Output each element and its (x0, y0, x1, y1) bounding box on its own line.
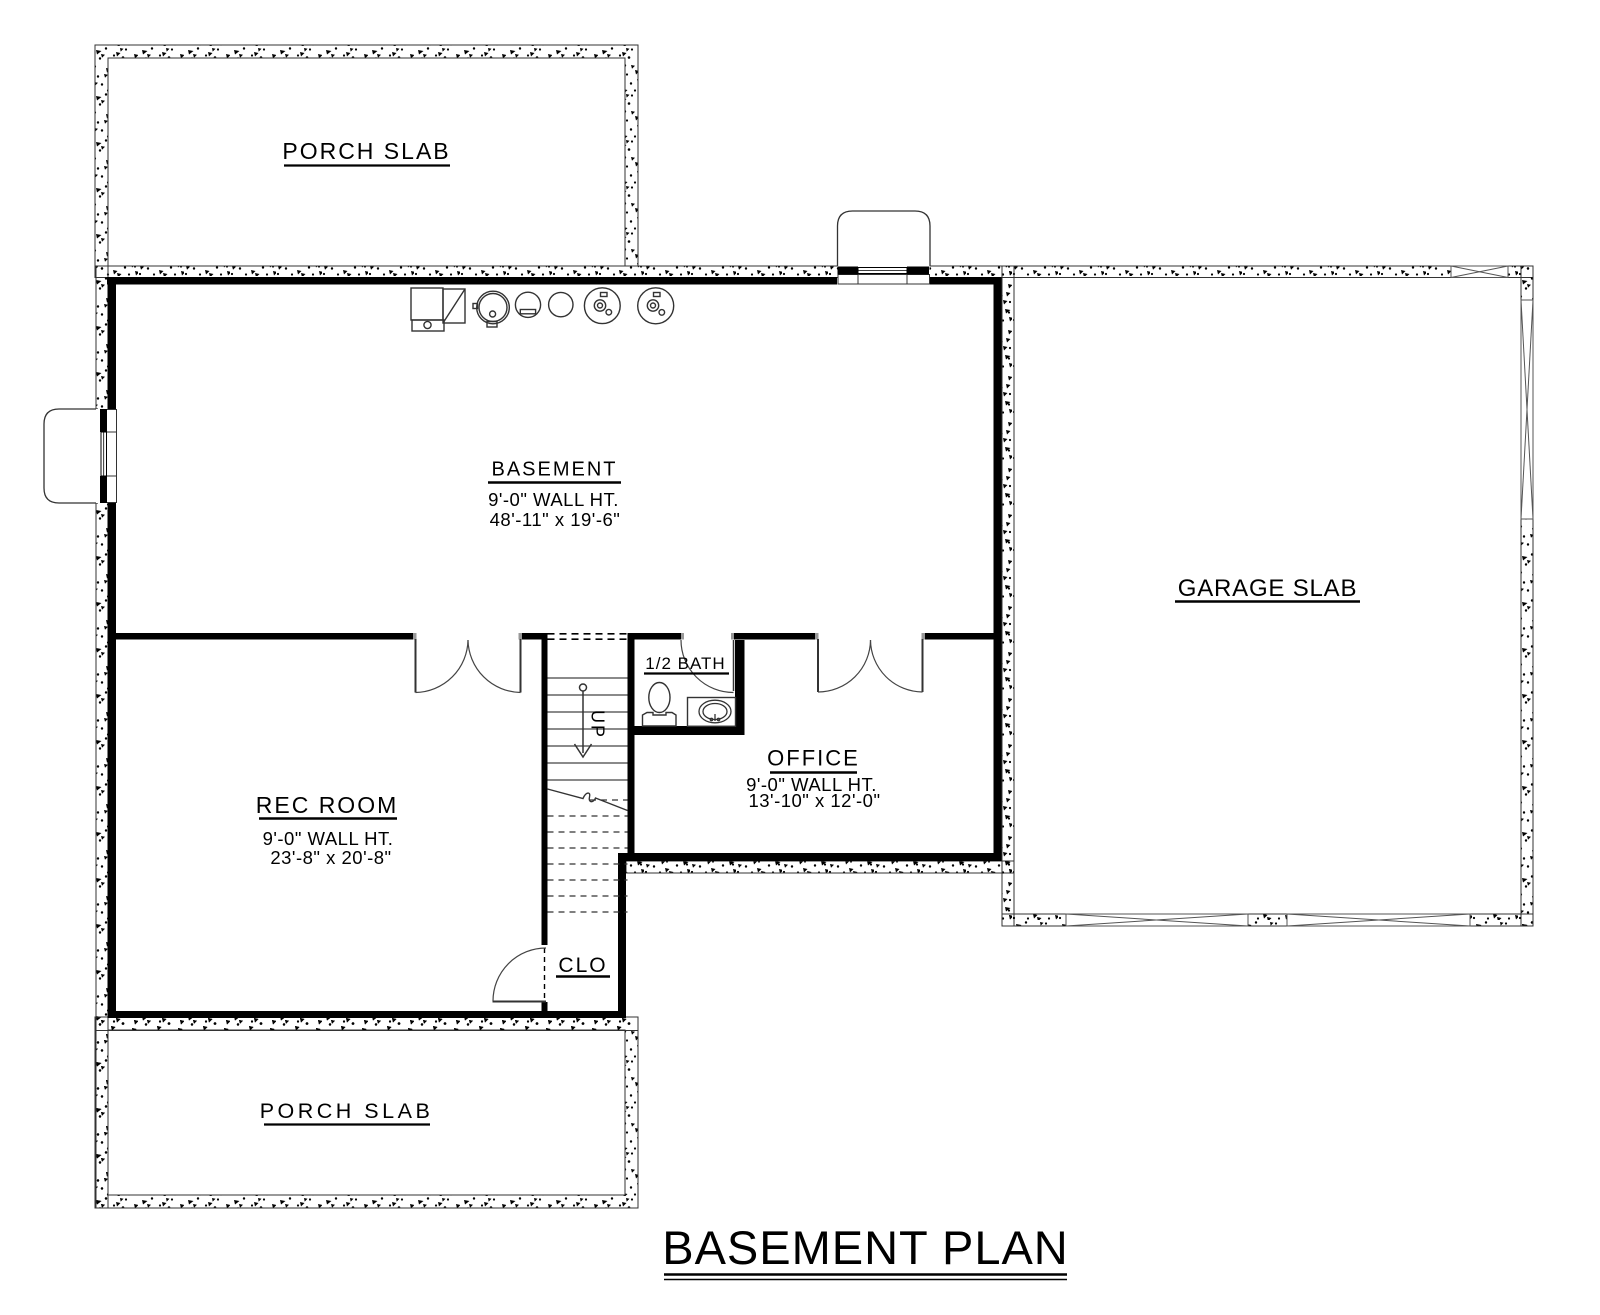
svg-text:13'-10" x 12'-0": 13'-10" x 12'-0" (748, 790, 880, 811)
svg-text:1/2 BATH: 1/2 BATH (645, 654, 725, 673)
svg-text:9'-0" WALL HT.: 9'-0" WALL HT. (488, 489, 619, 510)
svg-text:GARAGE SLAB: GARAGE SLAB (1178, 575, 1358, 602)
svg-text:UP: UP (588, 710, 608, 739)
svg-text:PORCH SLAB: PORCH SLAB (282, 138, 450, 164)
svg-text:CLO: CLO (558, 954, 607, 977)
svg-text:9'-0" WALL HT.: 9'-0" WALL HT. (263, 828, 394, 849)
svg-text:48'-11" x 19'-6": 48'-11" x 19'-6" (490, 509, 621, 530)
svg-text:BASEMENT PLAN: BASEMENT PLAN (662, 1221, 1069, 1274)
svg-text:23'-8" x 20'-8": 23'-8" x 20'-8" (270, 847, 391, 868)
svg-text:OFFICE: OFFICE (767, 746, 860, 771)
svg-text:BASEMENT: BASEMENT (491, 459, 617, 481)
svg-text:REC ROOM: REC ROOM (256, 792, 399, 818)
svg-text:PORCH SLAB: PORCH SLAB (260, 1099, 434, 1123)
